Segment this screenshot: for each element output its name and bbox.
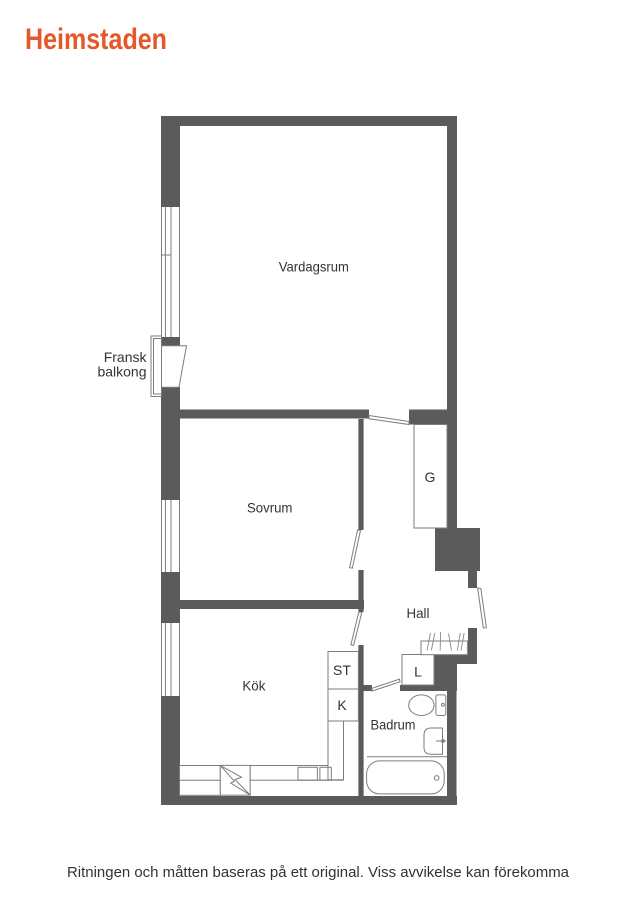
svg-text:L: L	[414, 664, 422, 680]
svg-text:ST: ST	[333, 662, 351, 678]
svg-text:Heimstaden: Heimstaden	[25, 23, 167, 56]
svg-text:Badrum: Badrum	[371, 717, 416, 733]
svg-text:Kök: Kök	[242, 678, 266, 694]
svg-text:Hall: Hall	[407, 605, 430, 621]
svg-text:G: G	[425, 469, 436, 485]
svg-text:Sovrum: Sovrum	[247, 500, 293, 516]
svg-text:Vardagsrum: Vardagsrum	[279, 259, 349, 275]
svg-text:K: K	[337, 697, 347, 713]
svg-text:balkong: balkong	[97, 364, 146, 380]
svg-text:Ritningen och måtten baseras p: Ritningen och måtten baseras på ett orig…	[67, 865, 570, 881]
